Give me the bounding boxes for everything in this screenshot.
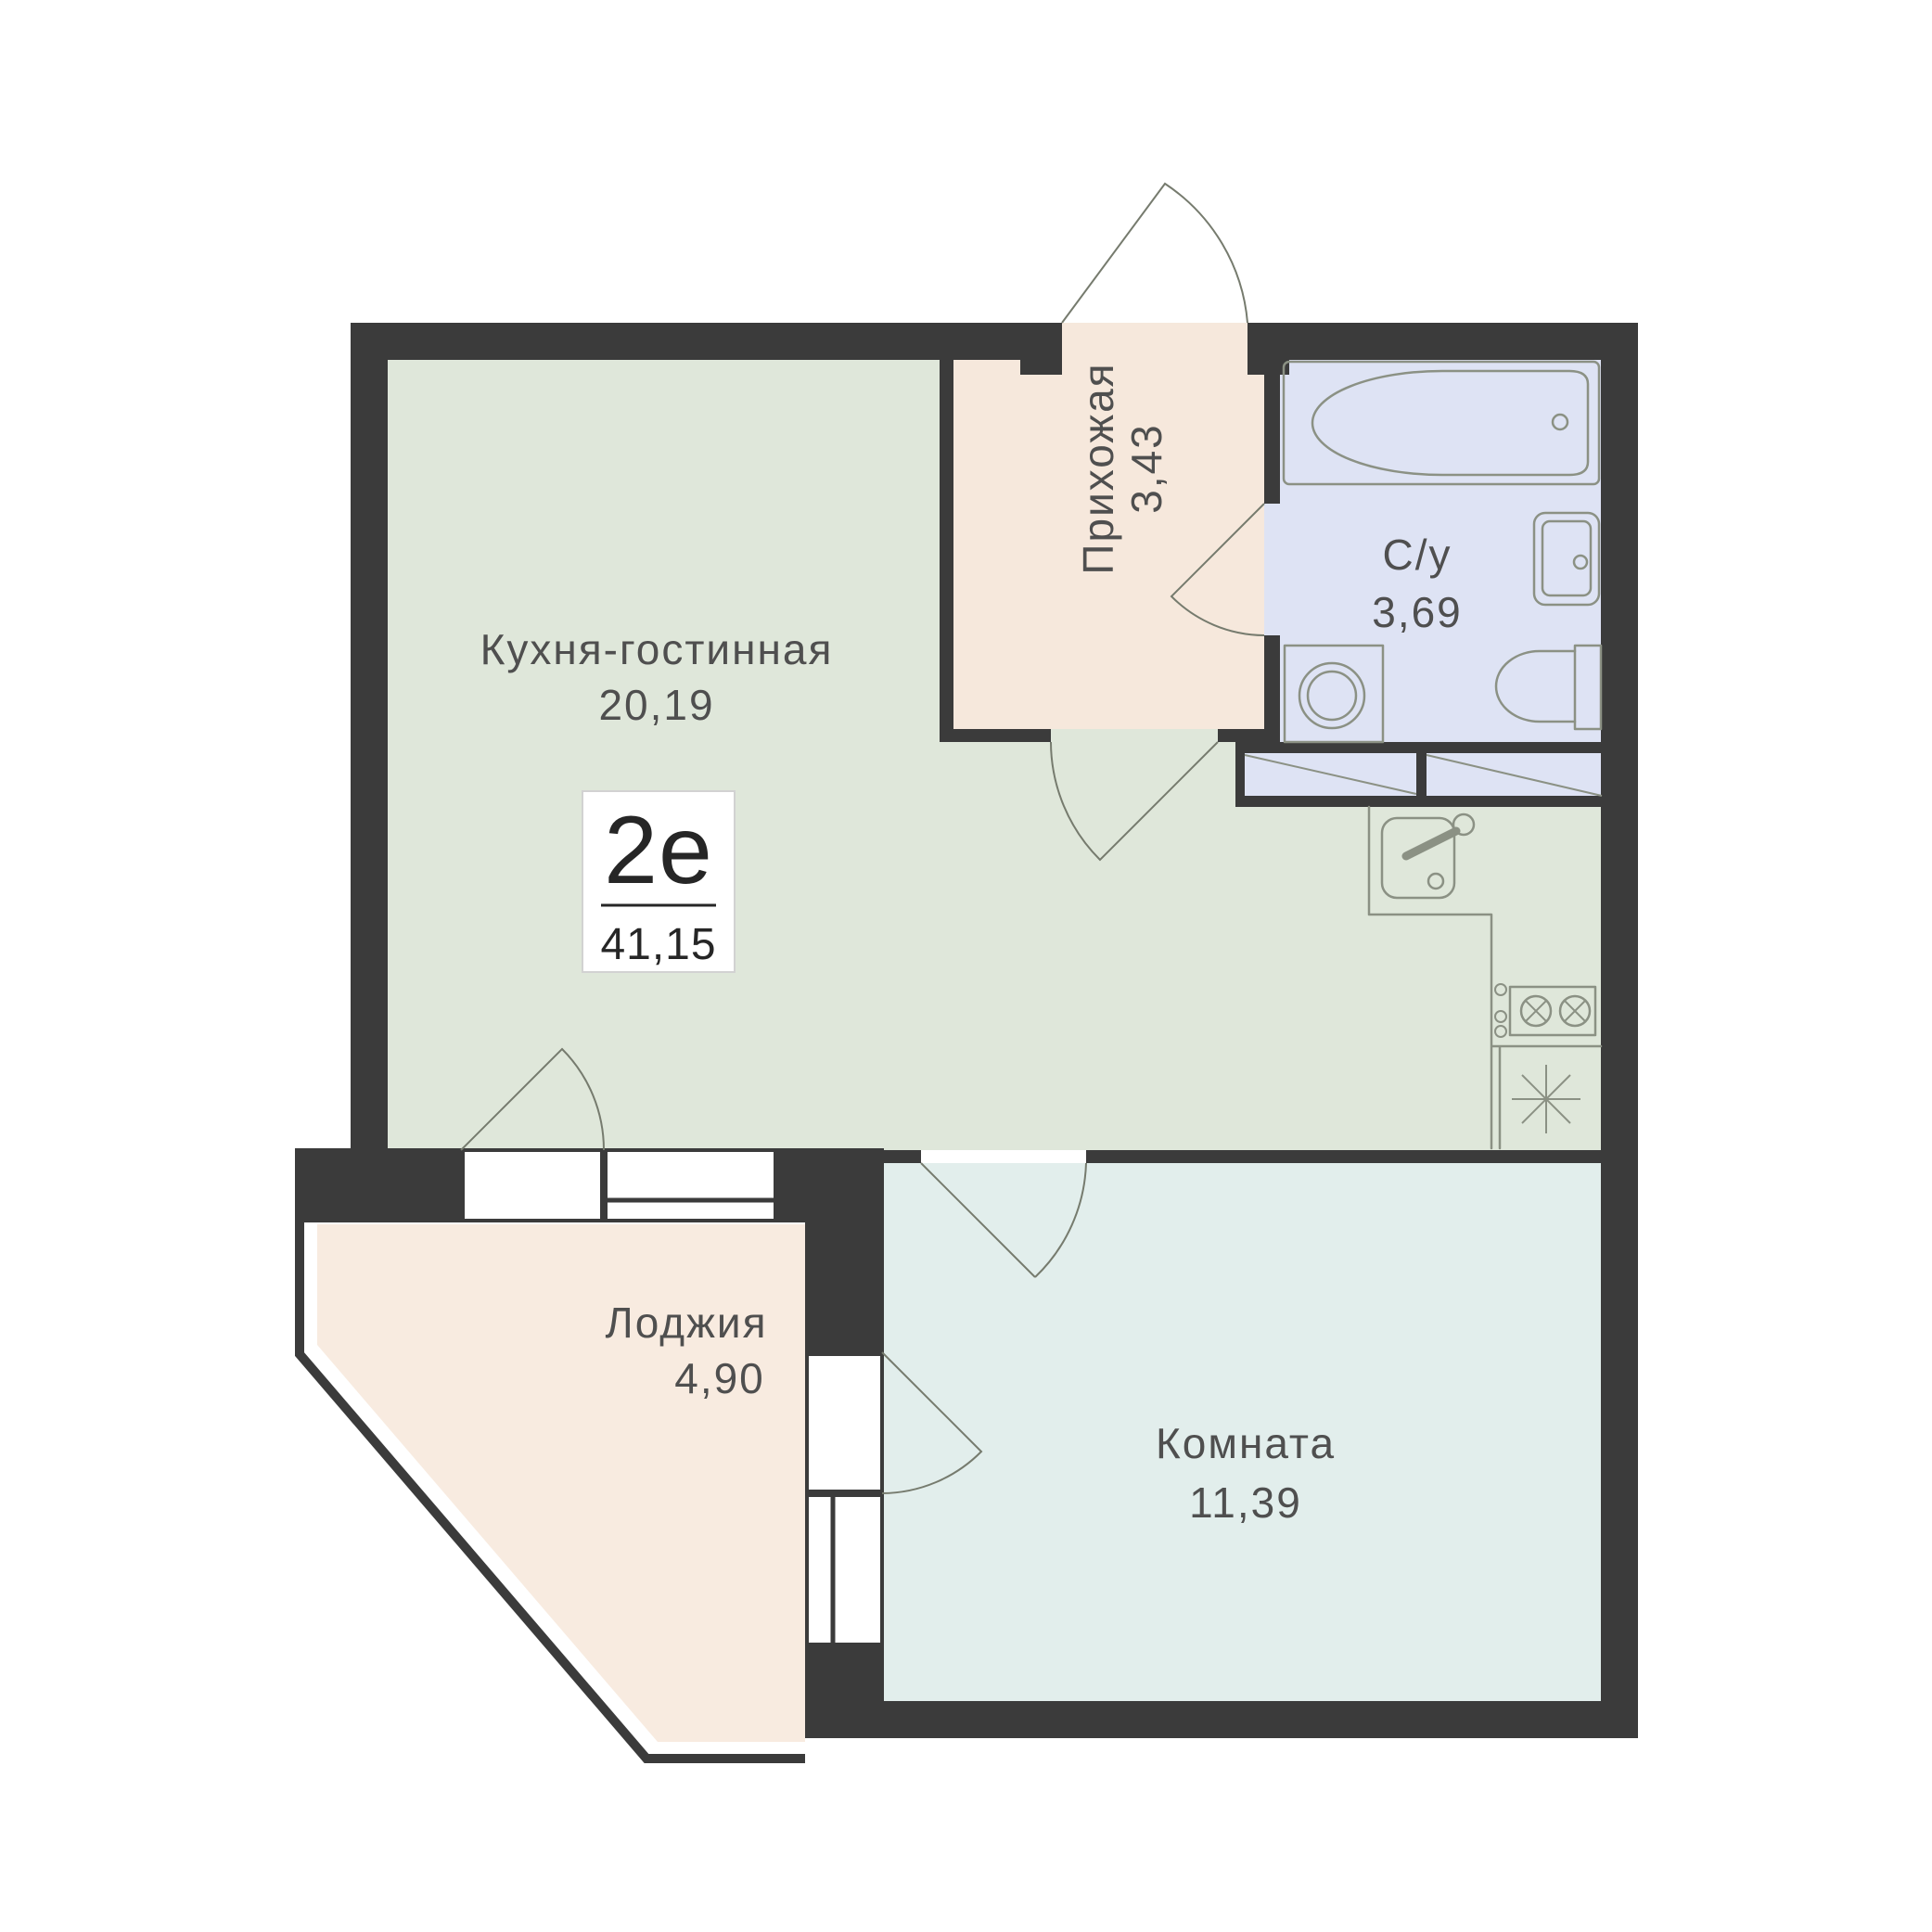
unit-total-area-text: 41,15 bbox=[600, 920, 716, 969]
wall-kitchen-room-stub bbox=[884, 1150, 921, 1163]
wall-top-left bbox=[351, 323, 1062, 360]
unit-badge: 2е 41,15 bbox=[582, 791, 735, 972]
entrance-door-arc bbox=[1062, 184, 1247, 323]
balcony-door-kitchen bbox=[465, 1152, 600, 1219]
hallway-entry-gap bbox=[1062, 323, 1247, 360]
wall-kitchen-room bbox=[1086, 1150, 1601, 1163]
wall-hallway-bottom-left bbox=[940, 729, 1051, 742]
kitchen-living-label: Кухня-гостинная bbox=[480, 625, 834, 673]
wall-wardrobe-left bbox=[1235, 742, 1245, 807]
wall-wardrobe-divider bbox=[1416, 753, 1427, 796]
room-label: Комната bbox=[1156, 1419, 1336, 1467]
floor-plan-svg: Кухня-гостинная 20,19 Прихожая 3,43 С/у … bbox=[0, 0, 1932, 1932]
wall-wardrobe-bottom bbox=[1235, 796, 1602, 807]
wall-entry-jamb-left bbox=[1020, 360, 1062, 375]
wall-right bbox=[1601, 360, 1638, 1738]
window-room-loggia bbox=[809, 1497, 880, 1643]
balcony-door-room bbox=[809, 1356, 880, 1490]
wall-hallway-left bbox=[940, 360, 953, 742]
bathroom-label: С/у bbox=[1383, 531, 1452, 579]
unit-type-text: 2е bbox=[604, 797, 713, 904]
wall-wardrobe-top bbox=[1235, 742, 1602, 753]
hallway-label: Прихожая bbox=[1074, 362, 1122, 574]
kitchen-living-area: 20,19 bbox=[598, 681, 714, 729]
window-kitchen-loggia bbox=[608, 1152, 774, 1219]
fridge-vent-asterisk-icon bbox=[1512, 1065, 1580, 1133]
loggia-label: Лоджия bbox=[606, 1299, 768, 1347]
wall-top-right bbox=[1247, 323, 1638, 360]
bathroom-area: 3,69 bbox=[1372, 588, 1463, 636]
wall-bottom bbox=[805, 1701, 1601, 1738]
wall-bathroom-left-lower bbox=[1264, 635, 1280, 742]
hallway-area: 3,43 bbox=[1122, 423, 1171, 514]
floor-plan-page: Кухня-гостинная 20,19 Прихожая 3,43 С/у … bbox=[0, 0, 1932, 1932]
bathroom-door-gap bbox=[1264, 504, 1280, 635]
room-area: 11,39 bbox=[1189, 1478, 1302, 1527]
wall-bathroom-left-upper bbox=[1264, 360, 1280, 504]
wall-left bbox=[351, 360, 388, 1148]
loggia-area: 4,90 bbox=[674, 1354, 765, 1402]
